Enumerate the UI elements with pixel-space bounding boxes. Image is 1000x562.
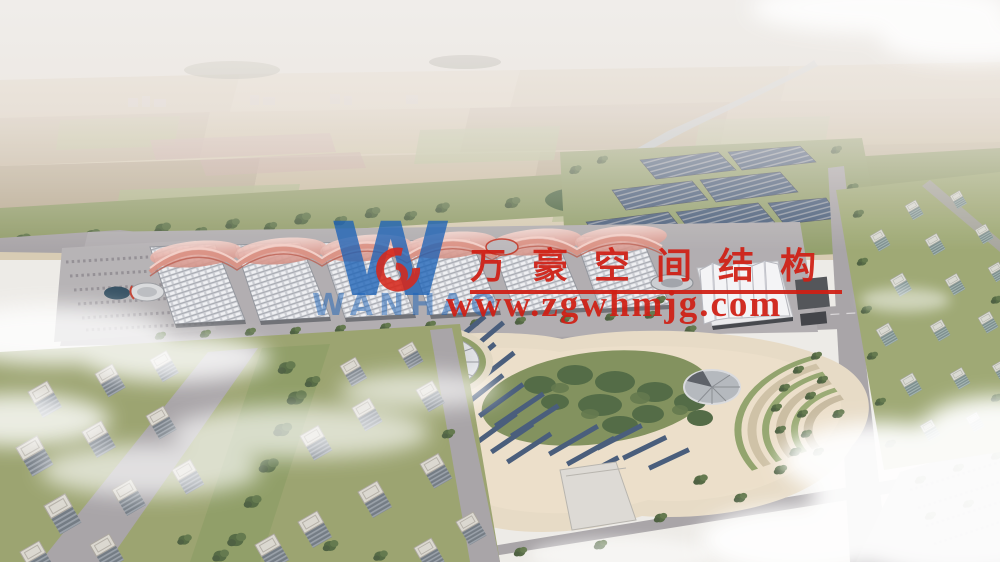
website-watermark: www.zgwhmjg.com — [446, 286, 782, 323]
aerial-rendering: W WANHAO 万豪空间结构 www.zgwhmjg.com — [0, 0, 1000, 562]
